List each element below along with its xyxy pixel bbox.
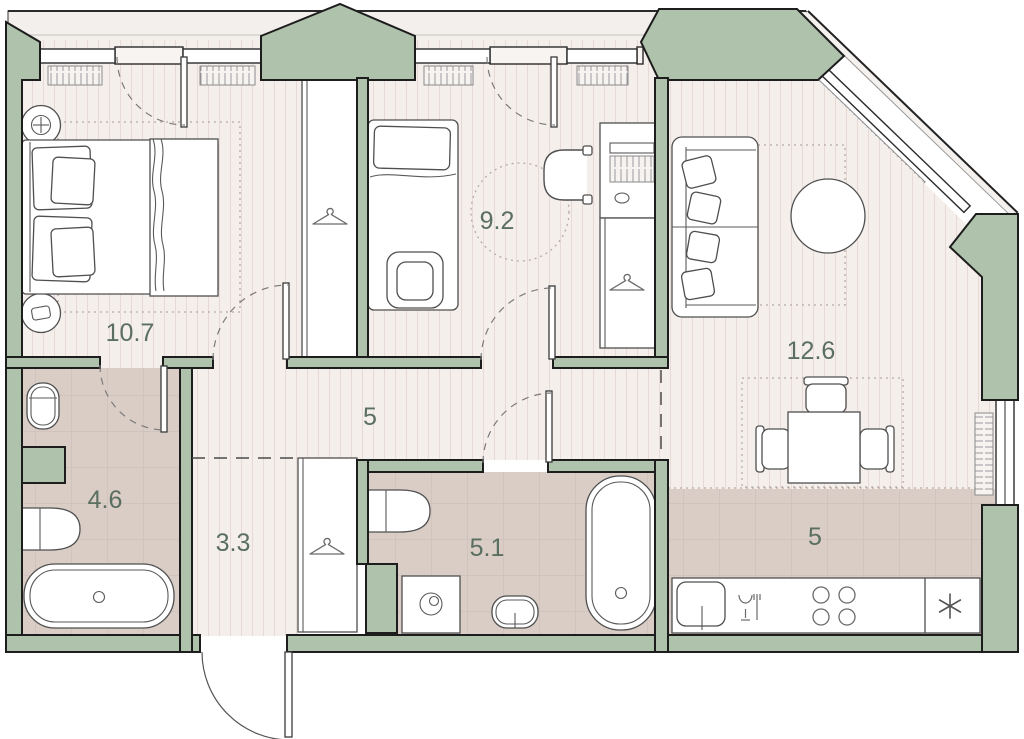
- furniture-corridor: [298, 458, 357, 632]
- floor-hallway: [192, 368, 668, 460]
- chair: [762, 429, 790, 469]
- wall-bedrooms-divider: [357, 78, 368, 368]
- round-rug: [791, 179, 865, 253]
- room-label-bathroom-2: 5.1: [470, 534, 505, 562]
- room-label-hallway: 5: [363, 403, 377, 431]
- room-label-corridor: 3.3: [216, 529, 251, 557]
- wall-living-divider: [655, 78, 668, 368]
- entrance-door-swing: [202, 652, 290, 739]
- room-label-kitchen: 5: [808, 523, 822, 551]
- door-leaf: [161, 366, 167, 432]
- wall-bathroom2-left: [357, 460, 368, 564]
- entrance-opening: [201, 636, 286, 651]
- room-label-living-room: 12.6: [787, 337, 836, 365]
- room-label-bedroom-2: 9.2: [480, 207, 515, 235]
- radiator-icon: [200, 66, 255, 85]
- pillow: [686, 191, 721, 225]
- pillow: [686, 231, 720, 264]
- pillow: [51, 157, 95, 205]
- balcony-door-leaf: [181, 57, 187, 127]
- chair: [860, 429, 888, 469]
- radiator-icon: [48, 66, 102, 85]
- entrance-door-leaf: [285, 652, 292, 737]
- bathtub: [586, 476, 656, 630]
- radiator-icon: [424, 66, 473, 85]
- wall-pier-right-lower: [982, 505, 1018, 652]
- kitchen-sink: [677, 582, 725, 626]
- door-leaf: [549, 286, 555, 359]
- window: [183, 49, 261, 63]
- balcony-door-section: [115, 47, 183, 64]
- wardrobe: [600, 218, 655, 348]
- radiator-icon: [577, 66, 628, 85]
- room-label-bathroom: 4.6: [88, 486, 123, 514]
- pillow: [373, 126, 450, 170]
- window: [415, 49, 490, 63]
- office-chair: [544, 150, 587, 200]
- blanket: [150, 139, 218, 296]
- balcony-door-leaf: [551, 57, 557, 127]
- floors: [22, 40, 995, 645]
- wall-bathroom-right: [180, 368, 192, 652]
- chair: [806, 384, 846, 413]
- floor-plan: 10.7 9.2 12.6 5 4.6 3.3 5.1 5: [0, 0, 1024, 739]
- wall-bottom-right: [287, 635, 1018, 652]
- radiator-icon: [975, 413, 993, 495]
- furniture-kitchen: [672, 578, 980, 633]
- wardrobe: [302, 80, 357, 357]
- duct-shaft: [22, 447, 65, 483]
- washbasin: [22, 508, 80, 550]
- door-leaf: [283, 283, 289, 359]
- wardrobe: [298, 458, 357, 632]
- freestanding-bathtub: [24, 564, 174, 628]
- wall-bathroom2-right: [655, 460, 668, 652]
- keyboard-icon: [610, 156, 654, 182]
- pillow: [681, 268, 715, 301]
- room-label-bedroom: 10.7: [106, 319, 155, 347]
- pillow: [51, 227, 95, 277]
- toilet: [27, 383, 59, 429]
- window: [40, 49, 115, 63]
- duct-shaft: [366, 564, 397, 633]
- washbasin: [368, 490, 430, 532]
- pillow: [397, 262, 433, 300]
- window: [567, 49, 637, 63]
- floor-plan-canvas: 10.7 9.2 12.6 5 4.6 3.3 5.1 5: [0, 0, 1024, 739]
- wall-bottom-left: [6, 635, 200, 652]
- nightstand: [22, 294, 61, 333]
- door-leaf: [546, 391, 552, 462]
- dining-table: [788, 412, 860, 483]
